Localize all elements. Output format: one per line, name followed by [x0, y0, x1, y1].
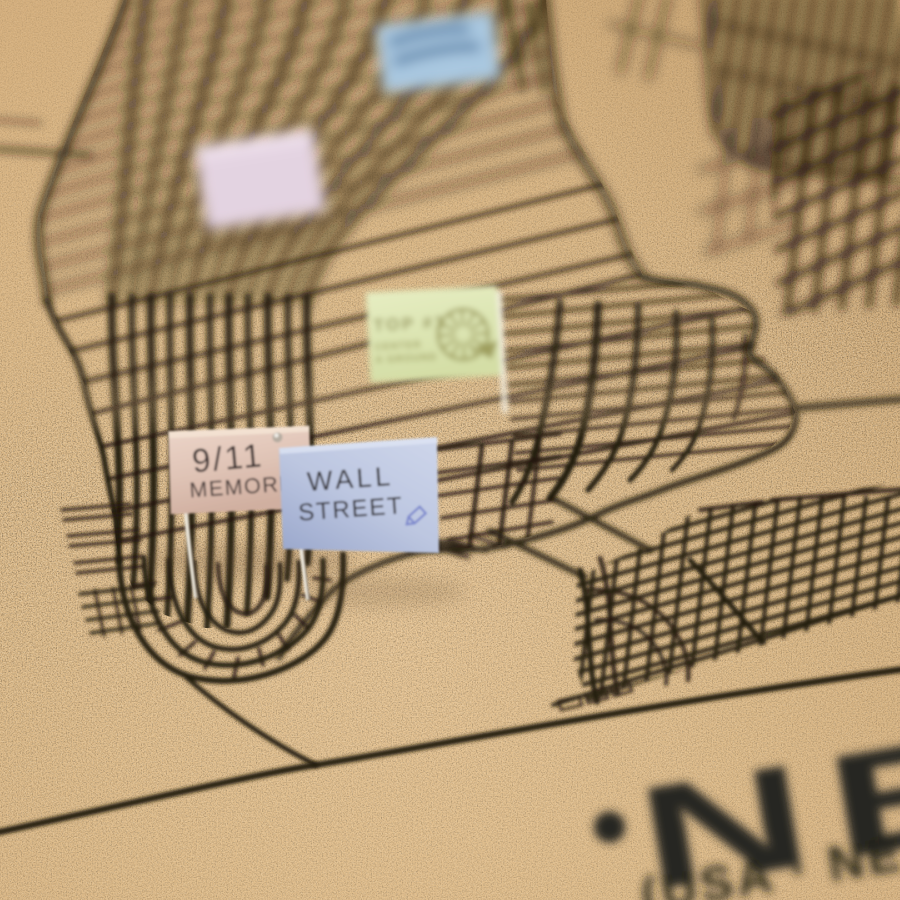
svg-text:TOP #1: TOP #1 — [373, 312, 447, 335]
svg-text:WALL: WALL — [306, 461, 394, 497]
svg-text:9/11: 9/11 — [190, 436, 265, 479]
